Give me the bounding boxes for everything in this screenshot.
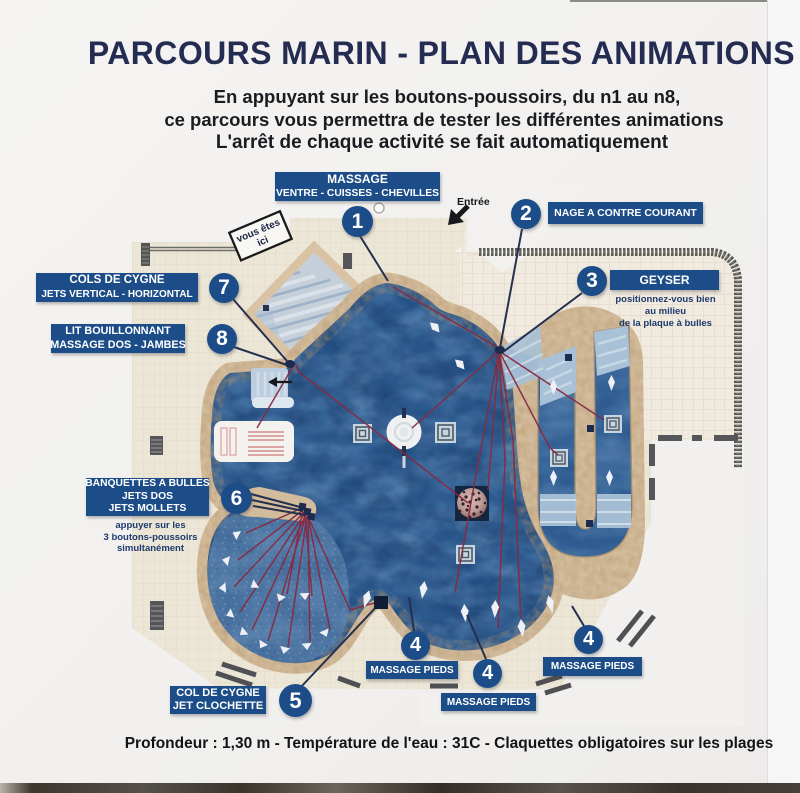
svg-text:Entrée: Entrée (457, 196, 490, 208)
